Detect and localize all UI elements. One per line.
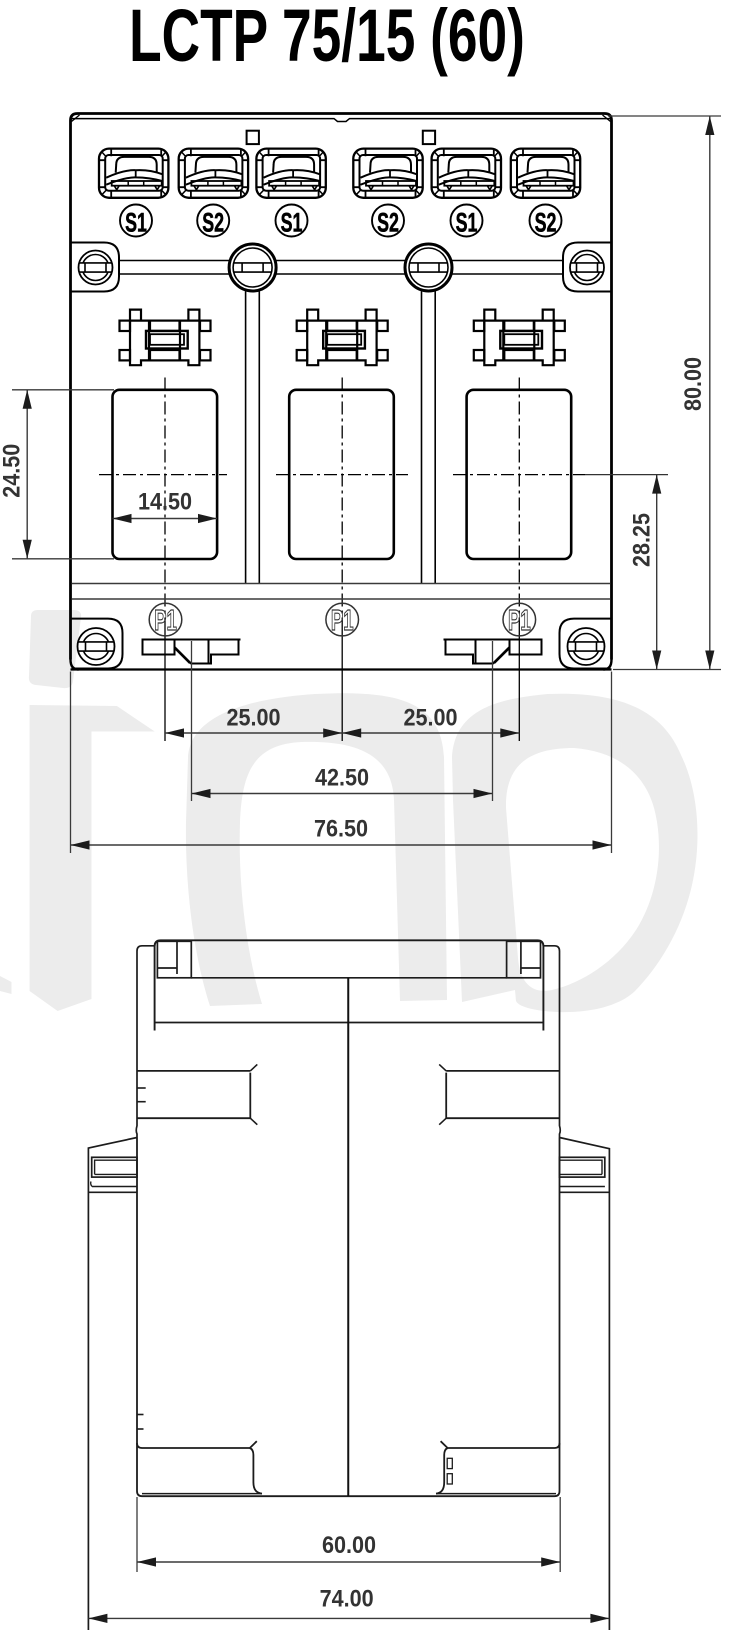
svg-text:S2: S2 bbox=[377, 207, 399, 238]
svg-text:80.00: 80.00 bbox=[679, 357, 706, 411]
svg-text:P1: P1 bbox=[154, 605, 177, 637]
svg-text:S1: S1 bbox=[281, 207, 303, 238]
svg-text:28.25: 28.25 bbox=[627, 513, 654, 567]
svg-text:74.00: 74.00 bbox=[320, 1584, 374, 1611]
svg-text:25.00: 25.00 bbox=[403, 703, 457, 730]
svg-text:P1: P1 bbox=[508, 605, 531, 637]
svg-text:60.00: 60.00 bbox=[322, 1531, 376, 1558]
svg-text:25.00: 25.00 bbox=[226, 703, 280, 730]
svg-text:LCTP 75/15 (60): LCTP 75/15 (60) bbox=[129, 0, 525, 77]
svg-text:P1: P1 bbox=[331, 605, 354, 637]
svg-text:S1: S1 bbox=[125, 207, 147, 238]
svg-text:S2: S2 bbox=[202, 207, 224, 238]
svg-text:S2: S2 bbox=[535, 207, 557, 238]
svg-text:14.50: 14.50 bbox=[138, 487, 192, 514]
svg-text:24.50: 24.50 bbox=[0, 444, 25, 498]
svg-text:42.50: 42.50 bbox=[315, 763, 369, 790]
svg-text:76.50: 76.50 bbox=[314, 814, 368, 841]
svg-text:S1: S1 bbox=[456, 207, 478, 238]
